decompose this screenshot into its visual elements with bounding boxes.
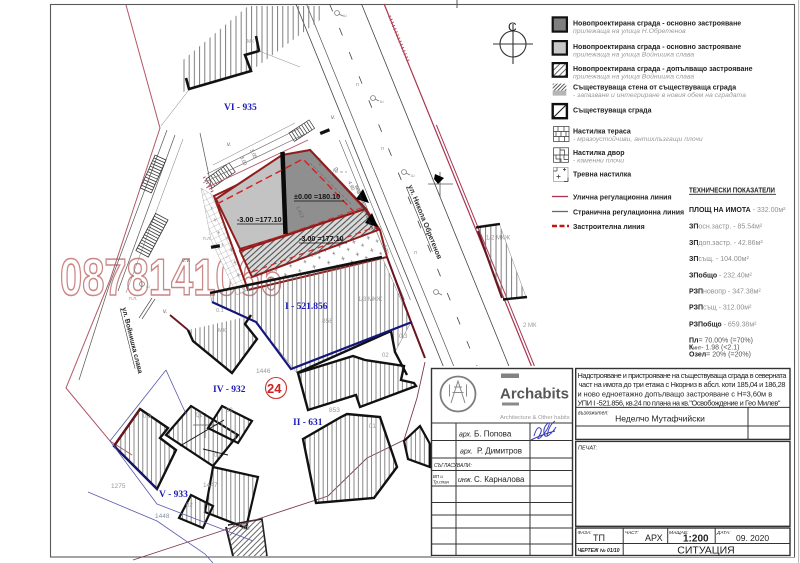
svg-text:856: 856 [322,318,333,325]
svg-text:1/3 МКЖ: 1/3 МКЖ [358,297,383,303]
svg-text:ФАЗА:: ФАЗА: [578,530,593,536]
svg-text:Новопроектирана сграда - основ: Новопроектирана сграда - основно застроя… [573,44,741,51]
svg-text:прилежаща на улица Войнишка сл: прилежаща на улица Войнишка слава [573,73,694,81]
svg-text:IV - 932: IV - 932 [213,385,246,395]
svg-text:ЧАСТ:: ЧАСТ: [625,530,639,536]
svg-text:п.л.: п.л. [203,236,211,242]
svg-text:II - 631: II - 631 [293,418,323,428]
svg-text:РЗПновопр - 347.38м²: РЗПновопр - 347.38м² [689,289,761,296]
svg-text:Улична регулационна линия: Улична регулационна линия [573,195,672,202]
svg-text:v.: v. [227,142,231,148]
svg-text:п: п [414,250,417,256]
svg-text:арх.: арх. [459,432,472,439]
svg-text:п: п [381,146,384,152]
svg-text:арх.: арх. [460,449,473,456]
svg-text:853: 853 [329,407,340,414]
svg-text:Кинт- 1.98 (<2.1): Кинт- 1.98 (<2.1) [689,345,739,352]
svg-text:01: 01 [214,453,221,459]
svg-text:ЗПосн.застр. - 85.54м²: ЗПосн.застр. - 85.54м² [689,224,763,231]
svg-text:Б. Попова: Б. Попова [474,430,512,439]
svg-text:v.: v. [331,115,335,121]
svg-text:-3.00 =177.10: -3.00 =177.10 [299,234,344,243]
svg-text:ПЕЧАТ:: ПЕЧАТ: [578,446,598,452]
svg-text:2 МК: 2 МК [523,323,537,329]
svg-text:1/2 МКЖ: 1/2 МКЖ [486,236,511,242]
svg-text:Озел= 20% (=20%): Озел= 20% (=20%) [689,352,751,359]
svg-text:09. 2020: 09. 2020 [736,533,769,543]
svg-text:Надстрояване и пристрояване на: Надстрояване и пристрояване на съществув… [578,371,788,380]
svg-text:1448: 1448 [155,513,170,520]
svg-text:Съществуваща стена от съществу: Съществуваща стена от съществуваща сград… [573,85,736,92]
svg-text:Настилка тераса: Настилка тераса [573,128,631,135]
svg-text:С. Карналова: С. Карналова [474,475,525,484]
svg-text:ДАТА:: ДАТА: [716,530,731,536]
svg-text:- мразоустойчиви, антихлъзгащи: - мразоустойчиви, антихлъзгащи плочи [573,135,703,143]
svg-text:Тревна настилка: Тревна настилка [573,172,631,179]
svg-text:ТП: ТП [593,533,605,543]
svg-text:СИТУАЦИЯ: СИТУАЦИЯ [677,545,734,557]
svg-text:АРХ: АРХ [645,533,663,543]
svg-text:Пл= 70.00% (=70%): Пл= 70.00% (=70%) [689,338,753,345]
svg-text:п.л.: п.л. [129,296,137,302]
svg-text:Тр.план: Тр.план [433,480,450,485]
svg-text:02: 02 [382,353,389,359]
svg-text:V - 933: V - 933 [159,490,188,500]
svg-text:1447: 1447 [203,482,218,489]
svg-text:v.v.: v.v. [182,258,190,264]
svg-text:Новопроектирана сграда - допъл: Новопроектирана сграда - допълващо застр… [573,66,753,73]
svg-text:0.3: 0.3 [399,334,408,340]
svg-text:0.1: 0.1 [216,308,224,314]
svg-text:ш: ш [411,173,415,178]
svg-text:прилежаща на улица Н.Обретенов: прилежаща на улица Н.Обретенов [573,27,686,35]
svg-text:ш: ш [343,13,347,18]
svg-text:02: 02 [186,503,193,509]
svg-text:Неделчо Мутафчийски: Неделчо Мутафчийски [615,414,705,424]
svg-text:Застроителна линия: Застроителна линия [573,224,645,231]
svg-text:01: 01 [369,424,376,430]
svg-text:УПИ I -521.856, кв.24 по плана: УПИ I -521.856, кв.24 по плана на кв."Ос… [578,399,781,408]
svg-text:част на имота до три етажа с Н: част на имота до три етажа с Нкорниз в а… [579,380,786,389]
svg-text:РЗПсъщ - 312.00м²: РЗПсъщ - 312.00м² [689,305,752,312]
svg-text:ш: ш [380,99,384,104]
svg-text:РЗПобщо - 659.38м²: РЗПобщо - 659.38м² [689,321,757,329]
svg-text:VI - 935: VI - 935 [224,103,257,113]
svg-text:възложител:: възложител: [578,411,609,417]
svg-text:ЗПсъщ. - 104.00м²: ЗПсъщ. - 104.00м² [689,256,749,263]
svg-text:ТЕХНИЧЕСКИ ПОКАЗАТЕЛИ: ТЕХНИЧЕСКИ ПОКАЗАТЕЛИ [689,188,775,195]
svg-text:ВП и: ВП и [433,474,443,479]
svg-text:1:200: 1:200 [683,534,709,545]
svg-text:Новопроектирана сграда - основ: Новопроектирана сграда - основно застроя… [573,20,741,27]
svg-text:СЪГЛАСУВАЛИ:: СЪГЛАСУВАЛИ: [434,463,472,469]
svg-text:- запазване и интегриране в но: - запазване и интегриране в новия обем н… [573,91,746,99]
svg-text:ЧЕРТЕЖ № 01/10: ЧЕРТЕЖ № 01/10 [578,548,620,554]
svg-text:Странична регулационна линия: Странична регулационна линия [573,210,684,217]
svg-text:Р. Димитров: Р. Димитров [477,447,522,456]
svg-text:1275: 1275 [111,483,126,490]
svg-text:±0.00 =180.10: ±0.00 =180.10 [294,192,340,201]
svg-text:МК: МК [247,39,254,45]
svg-text:п: п [356,82,359,88]
svg-text:Д1: Д1 [195,413,203,419]
svg-text:I - 521.856: I - 521.856 [285,302,328,312]
svg-text:ЗПобщо - 232.40м²: ЗПобщо - 232.40м² [689,272,753,280]
svg-text:Съществуваща сграда: Съществуваща сграда [573,108,652,115]
svg-text:инж.: инж. [458,477,473,484]
svg-text:Настилка двор: Настилка двор [573,150,625,157]
svg-text:0.3: 0.3 [143,414,152,420]
svg-text:прилежаща на улица Войнишка сл: прилежаща на улица Войнишка слава [573,51,694,59]
svg-text:ПЛОЩ НА ИМОТА - 332.00м²: ПЛОЩ НА ИМОТА - 332.00м² [689,207,786,214]
svg-text:Archabits: Archabits [500,386,569,403]
svg-text:02: 02 [226,408,233,414]
svg-text:и ново едноетажно допълващо за: и ново едноетажно допълващо застрояване … [578,389,773,398]
svg-text:ш: ш [146,284,150,289]
svg-text:1446: 1446 [256,368,271,375]
svg-text:Architecture & Other habits: Architecture & Other habits [500,415,570,421]
svg-text:24: 24 [267,381,282,396]
svg-text:- каменни плочи: - каменни плочи [573,158,624,165]
svg-text:ЗПдоп.застр. - 42.86м²: ЗПдоп.застр. - 42.86м² [689,240,763,247]
svg-text:-3.00 =177.10: -3.00 =177.10 [237,215,282,224]
svg-text:C: C [508,20,517,34]
svg-text:v.: v. [163,309,167,315]
